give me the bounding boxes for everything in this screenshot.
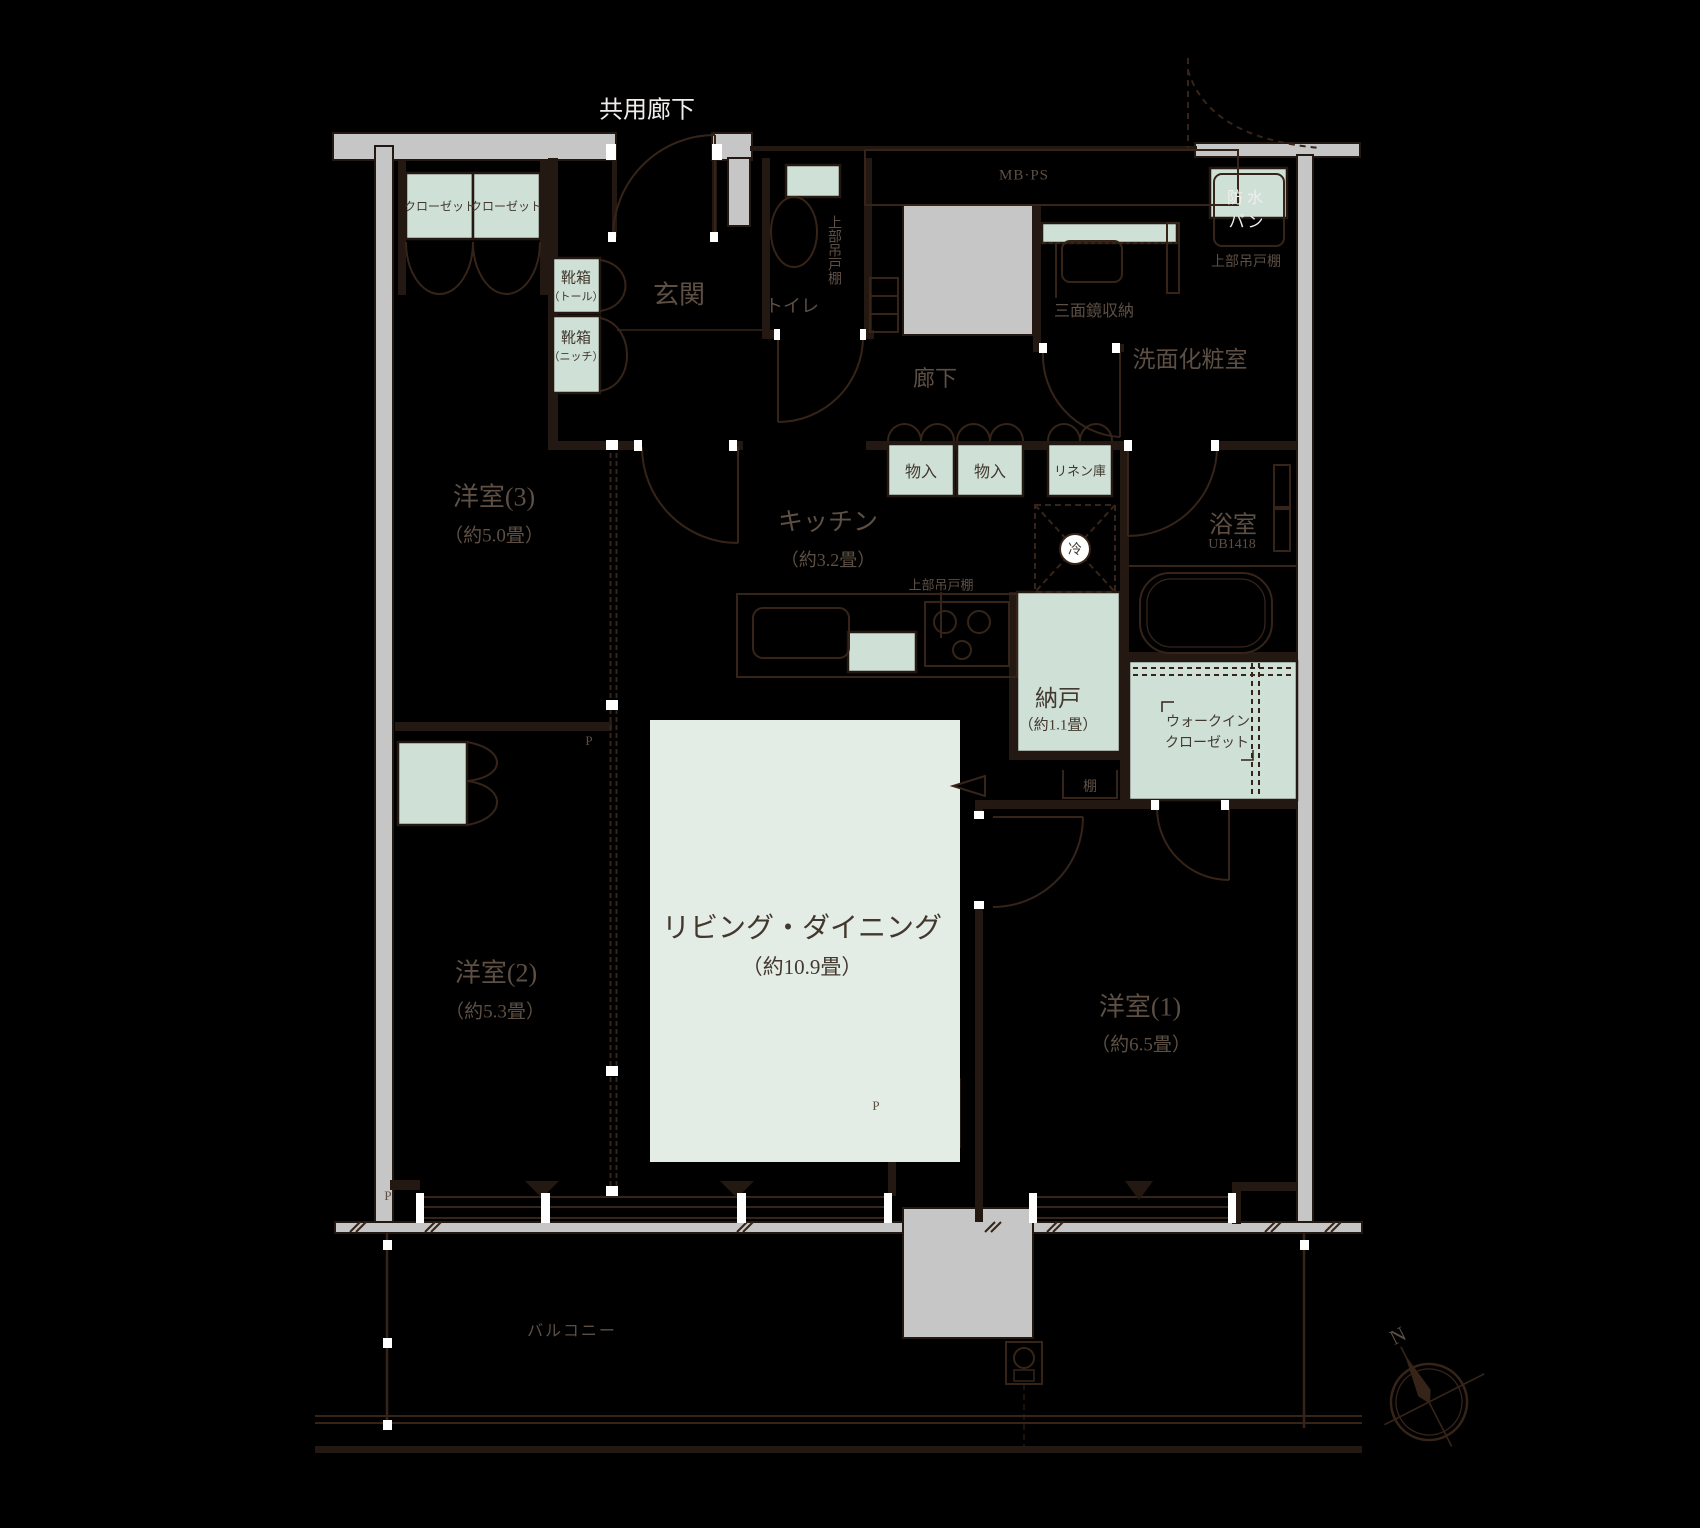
storage-in-label-1: 物入 (905, 458, 937, 482)
linen-label: リネン庫 (1054, 461, 1106, 480)
storage-room-size-label: （約1.1畳） (1019, 714, 1098, 735)
kitchen-upper-cabinet-label: 上部吊戸棚 (908, 575, 973, 594)
balcony-label: バルコニー (527, 1317, 617, 1341)
pipe-space-label-3: P (872, 1098, 879, 1114)
west1-label: 洋室(1) (1099, 987, 1181, 1024)
pipe-space-label-1: P (585, 733, 592, 749)
toilet-upper-cabinet-label: 上部吊戸棚 (823, 215, 843, 285)
compass-icon (1356, 1319, 1507, 1470)
floor-plan-linework (0, 0, 1700, 1528)
waterproof-pan-label-1: 防水 (1227, 184, 1267, 208)
west3-size-label: （約5.0畳） (444, 521, 544, 548)
kitchen-label: キッチン (778, 502, 878, 538)
bath-label: 浴室 (1209, 505, 1257, 540)
floor-plan: 共用廊下 クローゼット クローゼット 靴箱 （トール） 靴箱 （ニッチ） 玄関 … (0, 0, 1700, 1528)
closet-label-2: クローゼット (470, 198, 542, 215)
closet-label-1: クローゼット (404, 198, 476, 215)
washroom-label: 洗面化粧室 (1133, 340, 1248, 374)
west2-size-label: （約5.3畳） (445, 997, 545, 1024)
common-corridor-label: 共用廊下 (599, 90, 695, 125)
toilet-label: トイレ (765, 292, 819, 318)
west2-label: 洋室(2) (455, 953, 537, 990)
wic-label-1: ウォークイン (1166, 711, 1250, 731)
fridge-label: 冷 (1068, 539, 1082, 559)
bath-unit-label: UB1418 (1208, 537, 1255, 553)
balcony-windows (315, 1181, 1362, 1446)
entrance-label: 玄関 (653, 275, 705, 312)
west3-label: 洋室(3) (453, 477, 535, 514)
shoebox-tall-label: 靴箱 (561, 267, 591, 288)
west1-size-label: （約6.5畳） (1091, 1030, 1191, 1057)
mirror-storage-label: 三面鏡収納 (1054, 297, 1134, 321)
waterproof-pan-label-2: パン (1229, 208, 1266, 232)
mbps-label: MB·PS (999, 168, 1049, 185)
shoebox-niche-sub: （ニッチ） (549, 348, 604, 364)
wic-label-2: クローゼット (1165, 732, 1249, 752)
right-upper-cabinet-label: 上部吊戸棚 (1211, 251, 1281, 271)
kitchen-size-label: （約3.2畳） (781, 546, 876, 572)
shoebox-tall-sub: （トール） (549, 288, 604, 304)
living-dining-size-label: （約10.9畳） (742, 951, 863, 981)
storage-in-label-2: 物入 (974, 458, 1006, 482)
shoebox-niche-label: 靴箱 (561, 327, 591, 348)
living-dining-label: リビング・ダイニング (662, 906, 942, 946)
shelf-label: 棚 (1083, 776, 1097, 796)
pipe-space-label-2: P (384, 1188, 391, 1204)
storage-room-label: 納戸 (1035, 679, 1081, 713)
corridor-label: 廊下 (913, 361, 957, 393)
